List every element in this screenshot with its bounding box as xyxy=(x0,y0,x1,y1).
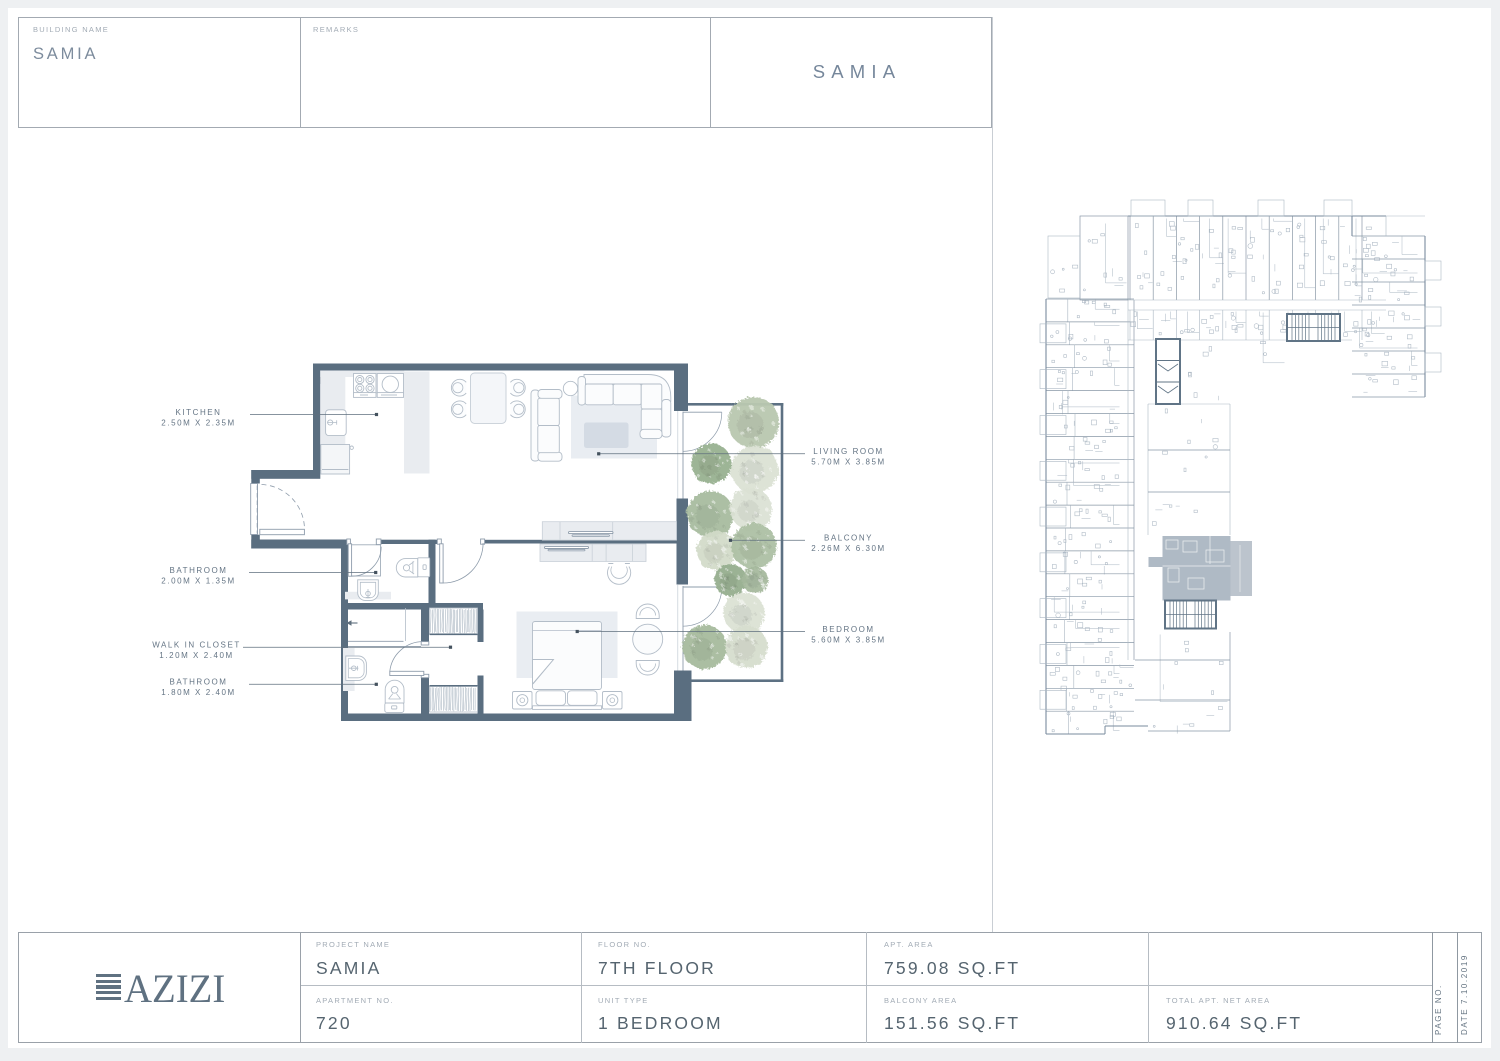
svg-text:5.60M X 3.85M: 5.60M X 3.85M xyxy=(811,635,885,644)
svg-text:KITCHEN: KITCHEN xyxy=(176,408,222,417)
svg-text:BEDROOM: BEDROOM xyxy=(822,625,874,634)
svg-text:2.50M X 2.35M: 2.50M X 2.35M xyxy=(161,418,235,427)
svg-text:1.80M X 2.40M: 1.80M X 2.40M xyxy=(161,688,235,697)
svg-text:WALK IN CLOSET: WALK IN CLOSET xyxy=(152,641,241,650)
svg-text:1.20M X 2.40M: 1.20M X 2.40M xyxy=(159,651,233,660)
svg-text:BATHROOM: BATHROOM xyxy=(169,566,227,575)
svg-text:2.26M X 6.30M: 2.26M X 6.30M xyxy=(811,544,885,553)
svg-text:LIVING ROOM: LIVING ROOM xyxy=(813,447,883,456)
svg-text:2.00M X 1.35M: 2.00M X 1.35M xyxy=(161,576,235,585)
svg-text:5.70M X 3.85M: 5.70M X 3.85M xyxy=(811,458,885,467)
svg-text:BALCONY: BALCONY xyxy=(824,534,873,543)
svg-text:BATHROOM: BATHROOM xyxy=(169,678,227,687)
